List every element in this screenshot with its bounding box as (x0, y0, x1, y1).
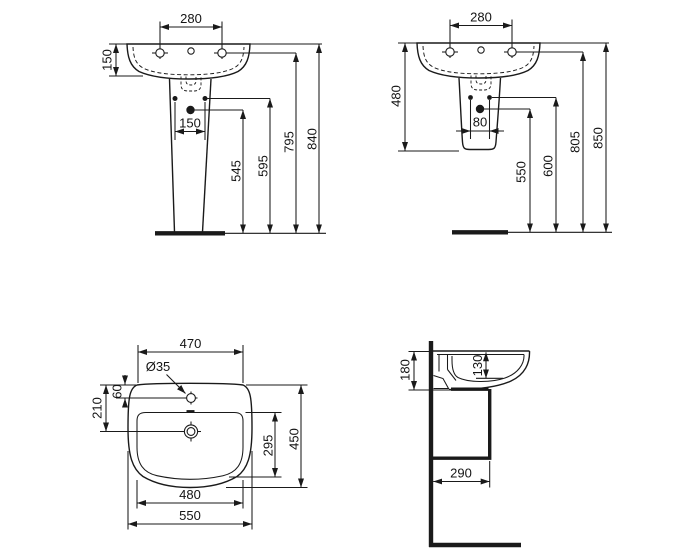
dim-label-depth-from-wall: 290 (450, 466, 472, 481)
dim-label-fixing-spacing: 150 (179, 116, 201, 131)
drawing-canvas: 280 150 150 545 595 795 840 (0, 0, 700, 560)
dim-label-tap-hole-diameter: Ø35 (146, 359, 171, 374)
dim-label-fixing-height: 595 (256, 155, 271, 177)
leader-lines (195, 44, 323, 110)
dim-overall-height: 840 (305, 44, 320, 233)
outlet-profile (433, 389, 490, 458)
dim-fixing-height: 600 (541, 98, 557, 233)
dim-rim-height: 150 (100, 44, 144, 76)
dim-depth-from-wall: 290 (433, 461, 490, 488)
dim-label-rear-width: 470 (180, 336, 202, 351)
bowl-plan-outline (137, 413, 243, 480)
outlet-hole (476, 105, 484, 113)
basin-front-outline (127, 44, 250, 91)
view-front-pedestal: 280 150 150 545 595 795 840 (100, 11, 327, 233)
view-side: 180 130 290 (398, 341, 530, 547)
dim-label-outlet-height: 550 (514, 161, 529, 183)
dim-label-bowl-inner-depth: 130 (470, 355, 485, 377)
dim-rim-height: 850 (591, 43, 607, 232)
dim-label-tap-height: 795 (282, 131, 297, 153)
dim-fixing-height: 595 (256, 99, 271, 234)
dim-tap-hole-diameter: Ø35 (146, 359, 186, 394)
dim-outlet-height: 545 (229, 110, 244, 233)
dim-label-fixing-height: 600 (541, 155, 556, 177)
dim-label-tap-spacing: 280 (180, 11, 202, 26)
dim-label-overall-depth: 450 (287, 428, 302, 450)
dim-tap-height: 795 (282, 53, 297, 233)
dim-label-rim-height: 850 (591, 127, 606, 149)
fixing-holes (173, 96, 208, 114)
dim-label-fixing-spacing: 80 (473, 115, 487, 130)
dim-bowl-inner-depth: 130 (470, 352, 503, 378)
dim-label-overall-width: 550 (179, 508, 201, 523)
view-front-semi-pedestal: 280 480 80 550 600 805 (389, 10, 613, 233)
dim-label-rim-height: 150 (100, 49, 115, 71)
fixing-holes (468, 95, 492, 113)
dim-tap-spacing: 280 (450, 10, 512, 48)
dim-tap-hole-offset: 60 (110, 375, 187, 408)
leader-lines (484, 43, 609, 109)
dim-label-bowl-depth: 295 (261, 435, 276, 457)
dim-outlet-height: 550 (514, 109, 531, 232)
basin-front-outline (417, 43, 540, 90)
dim-label-overall-height: 840 (305, 128, 320, 150)
dim-label-semi-pedestal-height: 480 (389, 85, 404, 107)
dim-semi-pedestal-height: 480 (389, 43, 460, 151)
dim-label-bowl-width: 480 (179, 487, 201, 502)
dim-label-tap-hole-offset: 60 (110, 384, 125, 398)
dim-tap-spacing: 280 (160, 11, 222, 48)
outlet-hole (186, 106, 194, 114)
washbasin-technical-drawing: 280 150 150 545 595 795 840 (0, 0, 700, 560)
dim-label-outlet-height: 545 (229, 160, 244, 182)
drain-hole-plan (181, 422, 201, 442)
dim-bowl-width: 480 (137, 480, 243, 509)
dim-label-basin-height: 180 (398, 359, 413, 381)
pedestal-outline (170, 79, 212, 232)
view-plan: Ø35 470 60 210 295 (90, 336, 308, 530)
dim-label-drain-offset: 210 (90, 397, 105, 419)
dim-label-tap-height: 805 (568, 131, 583, 153)
dim-tap-height: 805 (568, 52, 584, 232)
dim-label-tap-spacing: 280 (470, 10, 492, 25)
